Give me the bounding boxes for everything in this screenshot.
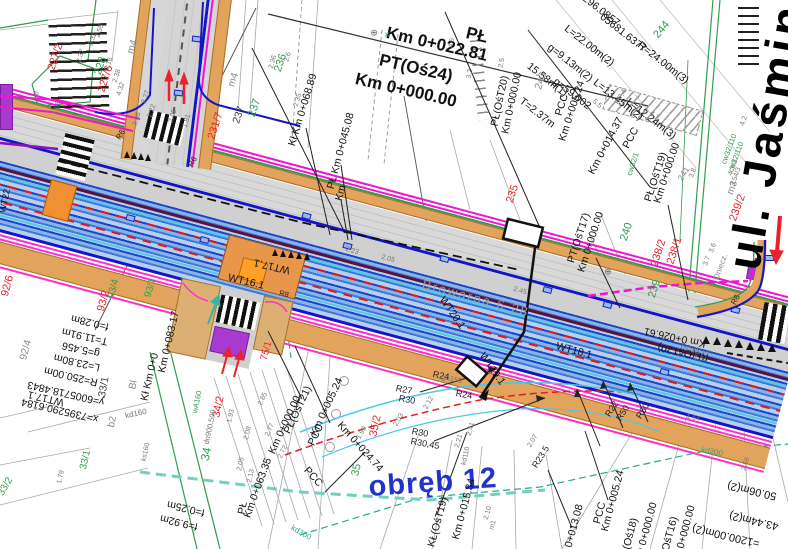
radii-label: R6	[187, 156, 199, 169]
geomBlock-label: T=2.37m	[517, 96, 556, 130]
parcelsGray-label: 33/1	[97, 376, 111, 398]
stations-label: Km 0+013.08	[559, 503, 585, 549]
parcelsGreen-label: 93/4	[107, 278, 122, 299]
dims-label: 3.7	[702, 255, 712, 267]
utilities-label: dn900.500	[203, 409, 218, 445]
parcelsRed-label: 235	[505, 184, 521, 205]
dims-label: 2.5	[498, 58, 507, 69]
dims-label: 2.05	[168, 108, 179, 123]
parcelsRed-label: 75/1	[260, 340, 275, 361]
dims-label: 2.23	[345, 246, 360, 256]
dims-label: 5.5	[591, 98, 603, 110]
dims-label: 4.32	[116, 81, 127, 96]
dims-label: ×	[384, 31, 390, 41]
stations-label: KŁ(OśT19)	[426, 496, 449, 548]
dims-label: 2.07	[527, 433, 540, 448]
parcelsGreen-label: 93/1	[144, 277, 159, 298]
dims-label: ⊕	[370, 29, 378, 38]
dims-label: m1	[488, 519, 497, 530]
radii-label: R6	[730, 294, 742, 307]
dims-label: 2.12	[423, 395, 436, 410]
dims-label: 2.10	[483, 506, 493, 521]
parcelsGray-label: m4	[227, 72, 241, 88]
kmBig-label: PŁ	[464, 24, 489, 45]
dims-label: 2.21	[454, 434, 464, 449]
parcelsRed-label: 238/2	[650, 238, 669, 268]
dims-label: 2.85	[257, 391, 269, 406]
parcelsGray-label: Oniecz.	[713, 253, 730, 281]
parcelsGreen-label: 239	[647, 279, 663, 300]
dims-label: 3.8	[688, 167, 698, 179]
parcelsRed-label: 92/6	[0, 274, 16, 298]
parcelsGreen-label: 35	[350, 463, 363, 477]
stations-label: PCC	[302, 465, 325, 489]
dims-label: 3.6	[708, 242, 718, 254]
texts-label: Browarna 6 28	[421, 277, 531, 318]
parcelsGreen-label: 240	[619, 222, 635, 243]
dims-label: 2.08	[243, 426, 253, 441]
dims-label: 2.05	[236, 457, 246, 472]
parcelsRed-label: 231/7	[207, 111, 226, 141]
parcelsRed-label: 227/2	[47, 42, 66, 72]
radii-label: R30	[398, 394, 416, 406]
parcelsGray-label: 92/4	[18, 339, 33, 361]
stations-label: PCC	[621, 126, 641, 151]
dims-label: 2.45	[513, 286, 528, 296]
stations-label: Km 0+014.37	[587, 116, 626, 176]
parcelsGray-label: Bl	[128, 380, 140, 391]
dims-label: 1.81	[182, 113, 193, 128]
radii-label: R8	[278, 289, 289, 298]
parcelsGray-label: m4	[126, 39, 140, 55]
dims-label: 2.05	[381, 254, 396, 264]
dims-label: 2.03	[393, 412, 406, 427]
dims-label: 1.64	[686, 413, 701, 423]
radii-label: R24	[455, 389, 473, 401]
labels-layer: ul. Jaśminobręb 12Browarna 6 28Km 0+022.…	[0, 0, 788, 549]
parcelsGreen-label: 33/1	[79, 449, 93, 470]
dims-label: 2.55	[95, 23, 106, 38]
wt-label: WT19.1	[477, 351, 507, 387]
dims-label: 1.93	[226, 409, 236, 424]
parcelsGreen-label: 244	[652, 19, 672, 40]
texts-label: obręb 12	[368, 464, 499, 502]
dims-label: 3.2	[466, 69, 475, 80]
dims-label: 1.79	[56, 470, 66, 485]
wt-label: WT17.1	[253, 257, 291, 276]
utilities-label: wA160	[191, 390, 203, 414]
radii-label: R23.5	[531, 444, 551, 469]
wt-label: WT16.1	[227, 273, 265, 292]
dims-label: 2.64	[693, 354, 708, 364]
stations-label: Km 0+005.24	[600, 469, 626, 532]
dims-label: 2.41	[466, 422, 476, 437]
geomBlock-label: R=24.00m(3)	[636, 40, 691, 86]
utilities-label: cw32/1	[626, 152, 640, 177]
radii-label: R30,45	[410, 437, 440, 451]
dims-label: ⊕	[604, 268, 612, 277]
dims-label: 2.6	[283, 51, 292, 62]
parcelsGray-label: 237	[231, 105, 246, 125]
stations-label: Kł Km 0+068.89	[287, 73, 319, 148]
parcelsGreen-label: 34	[199, 446, 214, 462]
dims-label: 1.99	[356, 425, 369, 440]
utilities-label: kd160	[125, 408, 148, 420]
parcelsGray-label: b2	[107, 416, 119, 429]
wt-label: WT18.1	[555, 341, 593, 361]
stations-label: Kł Km 0+0	[139, 352, 160, 402]
dims-label: 2.59	[741, 457, 751, 472]
measureBlockRight-label: 43.44m(2)	[728, 509, 779, 531]
stations-label: Km 0+083.17	[157, 310, 181, 374]
dims-label: 1.68	[52, 101, 62, 116]
dims-label: 1.8	[31, 90, 40, 101]
stations-label: PŁ Km 0+045.08	[326, 112, 356, 191]
radii-label: R6	[115, 129, 127, 142]
dims-label: 2.37	[76, 48, 87, 63]
parcelsRed-label: 35/2	[368, 414, 383, 437]
utilities-label: kd200	[701, 446, 724, 458]
dims-label: 2.08	[132, 111, 143, 126]
stations-label: Km 0+063.35	[242, 457, 273, 520]
road-design-plan-canvas: ul. Jaśminobręb 12Browarna 6 28Km 0+022.…	[0, 0, 788, 549]
parcelsGray-label: 243	[533, 71, 548, 91]
measureBlockRight-label: 50.06m(2)	[726, 479, 777, 501]
stations-label: Km	[334, 184, 348, 202]
utilities-label: kd300	[290, 524, 313, 542]
stations-label: WT22	[0, 188, 12, 213]
utilities-label: ks160	[141, 442, 152, 462]
parcelsGreen-label: 33/2	[0, 476, 15, 498]
dims-label: 2.22	[147, 103, 158, 118]
dims-label: 2.27	[141, 89, 152, 104]
radii-label: R50	[635, 402, 651, 421]
parcelsGreen-label: 237	[247, 98, 263, 119]
utilities-label: gn150	[441, 373, 463, 385]
